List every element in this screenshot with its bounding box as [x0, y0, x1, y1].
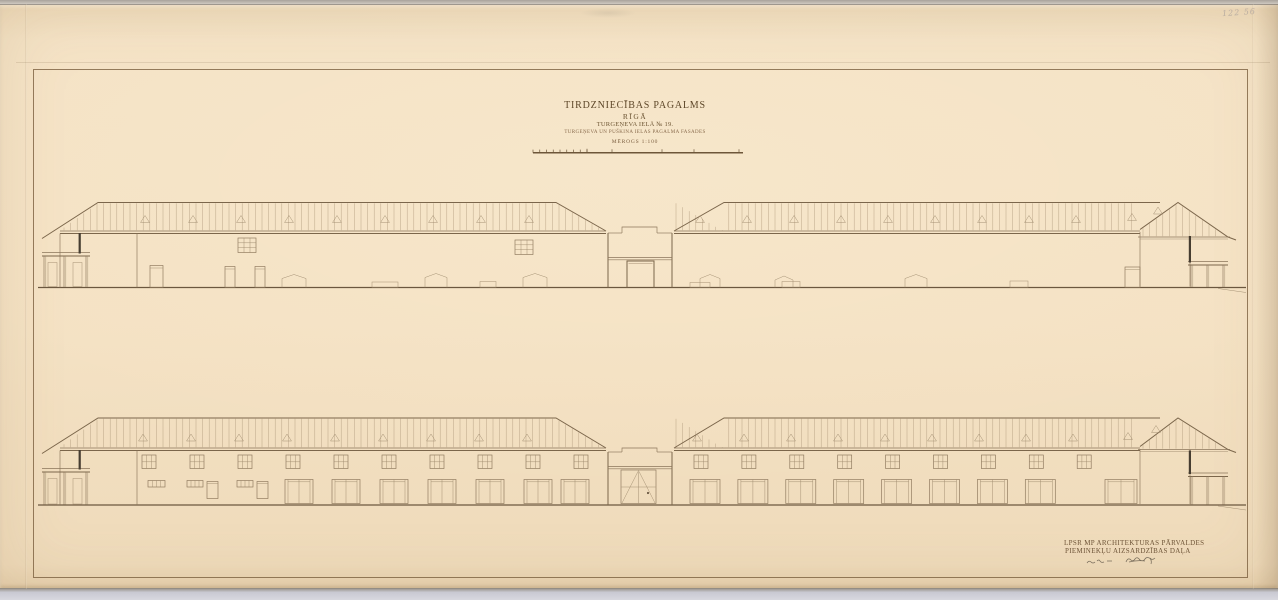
handwritten-annotations: [1087, 558, 1155, 565]
upper-elevation-drawing: [38, 203, 1246, 293]
scale-bar: [533, 149, 743, 153]
scanned-drawing-sheet: TIRDZNIECĪBAS PAGALMS RĪGĀ TURGEŅEVA IEL…: [0, 0, 1278, 600]
lower-elevation-drawing: [38, 418, 1246, 510]
elevation-linework: [0, 0, 1278, 600]
authority-stamp-block: LPSR MP ARCHITEKTURAS PĀRVALDES PIEMINEK…: [1064, 540, 1204, 555]
stamp-line-2: PIEMINEKĻU AIZSARDZĪBAS DAĻA: [1065, 548, 1204, 556]
